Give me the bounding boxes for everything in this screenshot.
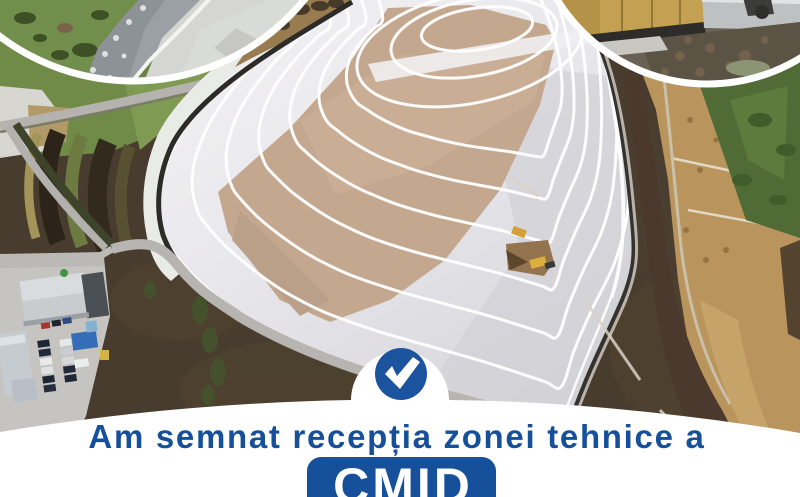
svg-text:CMID: CMID — [333, 458, 473, 497]
svg-text:Am semnat recepția zonei tehni: Am semnat recepția zonei tehnice a — [88, 418, 705, 456]
